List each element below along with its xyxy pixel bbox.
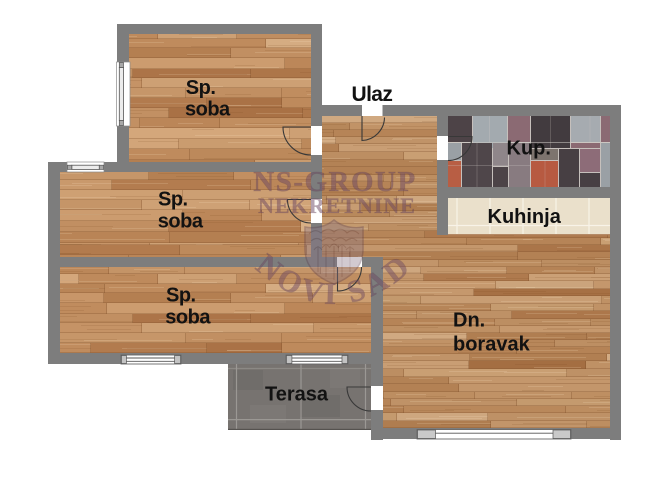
svg-text:Kup.: Kup.: [507, 138, 551, 160]
svg-text:Terasa: Terasa: [265, 383, 329, 405]
svg-text:Sp.: Sp.: [166, 285, 196, 307]
svg-text:Dn.: Dn.: [453, 309, 485, 331]
svg-text:soba: soba: [165, 307, 211, 329]
svg-text:Ulaz: Ulaz: [352, 83, 393, 106]
svg-text:Kuhinja: Kuhinja: [488, 206, 562, 228]
svg-text:soba: soba: [158, 211, 204, 233]
svg-text:Sp.: Sp.: [186, 77, 216, 99]
svg-text:NEKRETNINE: NEKRETNINE: [258, 193, 416, 218]
svg-text:soba: soba: [185, 99, 231, 121]
svg-text:boravak: boravak: [453, 334, 531, 356]
svg-text:Sp.: Sp.: [158, 189, 188, 211]
